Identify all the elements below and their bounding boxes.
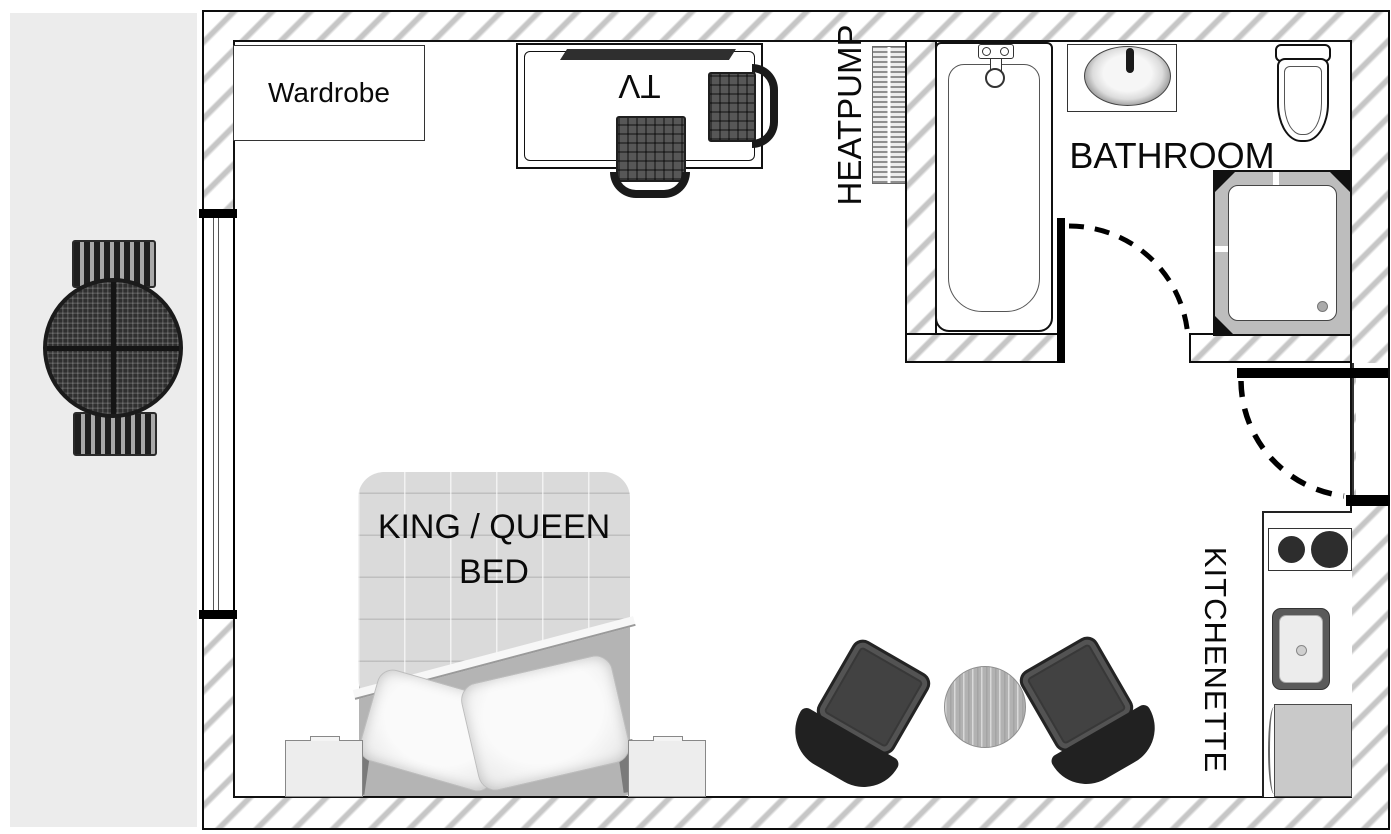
window-jamb-top <box>199 209 237 218</box>
window <box>202 217 235 610</box>
kitchen-sink <box>1272 608 1330 690</box>
shower <box>1213 170 1352 336</box>
desk-chair-side-back <box>752 64 778 148</box>
cooktop <box>1268 528 1352 571</box>
entry-door-jamb-bottom <box>1346 495 1390 506</box>
entry-opening <box>1356 363 1388 497</box>
heatpump-label: HEATPUMP <box>831 5 871 225</box>
bed-label-line2: BED <box>363 550 625 595</box>
heatpump-unit <box>872 46 906 184</box>
desk-chair-side-seat <box>708 72 756 142</box>
nightstand-right-handle <box>653 736 683 741</box>
toilet-seat <box>1284 66 1322 135</box>
nightstand-left-handle <box>310 736 340 741</box>
bathroom-door-leaf <box>1057 218 1065 363</box>
bathtub-faucet-handle-left <box>982 47 991 56</box>
shower-corner-bl <box>1215 316 1233 334</box>
kitchenette-label: KITCHENETTE <box>1193 520 1233 800</box>
vanity-faucet <box>1126 48 1134 73</box>
bathtub-spout <box>985 68 1005 88</box>
bed-label-line1: KING / QUEEN <box>363 505 625 550</box>
shower-corner-tr <box>1330 172 1350 192</box>
window-jamb-bottom <box>199 610 237 619</box>
entry-opening-inner-line <box>1352 363 1354 497</box>
shower-door-gap-top <box>1273 172 1279 185</box>
entry-door-leaf <box>1237 368 1388 378</box>
nightstand-left <box>285 740 363 797</box>
wardrobe-label: Wardrobe <box>268 77 390 109</box>
bathroom-south-wall-left <box>905 333 1061 363</box>
nightstand-right <box>628 740 706 797</box>
shower-drain <box>1317 301 1328 312</box>
bathtub <box>935 42 1053 332</box>
window-glass <box>213 217 219 610</box>
cooktop-burner-large <box>1311 531 1348 568</box>
tv-screen <box>560 49 736 60</box>
bed-label: KING / QUEEN BED <box>363 505 625 595</box>
vanity-counter <box>1067 44 1177 112</box>
wardrobe: Wardrobe <box>233 45 425 141</box>
patio-bench-bottom <box>73 412 157 456</box>
cooktop-burner-small <box>1278 536 1305 563</box>
bathroom-south-wall-right <box>1189 333 1352 363</box>
bathtub-faucet-handle-right <box>1000 47 1009 56</box>
toilet-bowl <box>1277 58 1329 142</box>
bathtub-basin <box>948 64 1040 312</box>
fridge <box>1274 704 1352 797</box>
shower-corner-tl <box>1215 172 1235 192</box>
patio-table <box>43 278 183 418</box>
shower-door-gap-left <box>1215 246 1228 252</box>
fridge-door-line <box>1268 707 1280 794</box>
floor-plan: Wardrobe TV HEATPUMP BATHROOM <box>0 0 1391 834</box>
bathroom-west-wall <box>905 40 937 363</box>
kitchen-sink-drain <box>1296 645 1307 656</box>
